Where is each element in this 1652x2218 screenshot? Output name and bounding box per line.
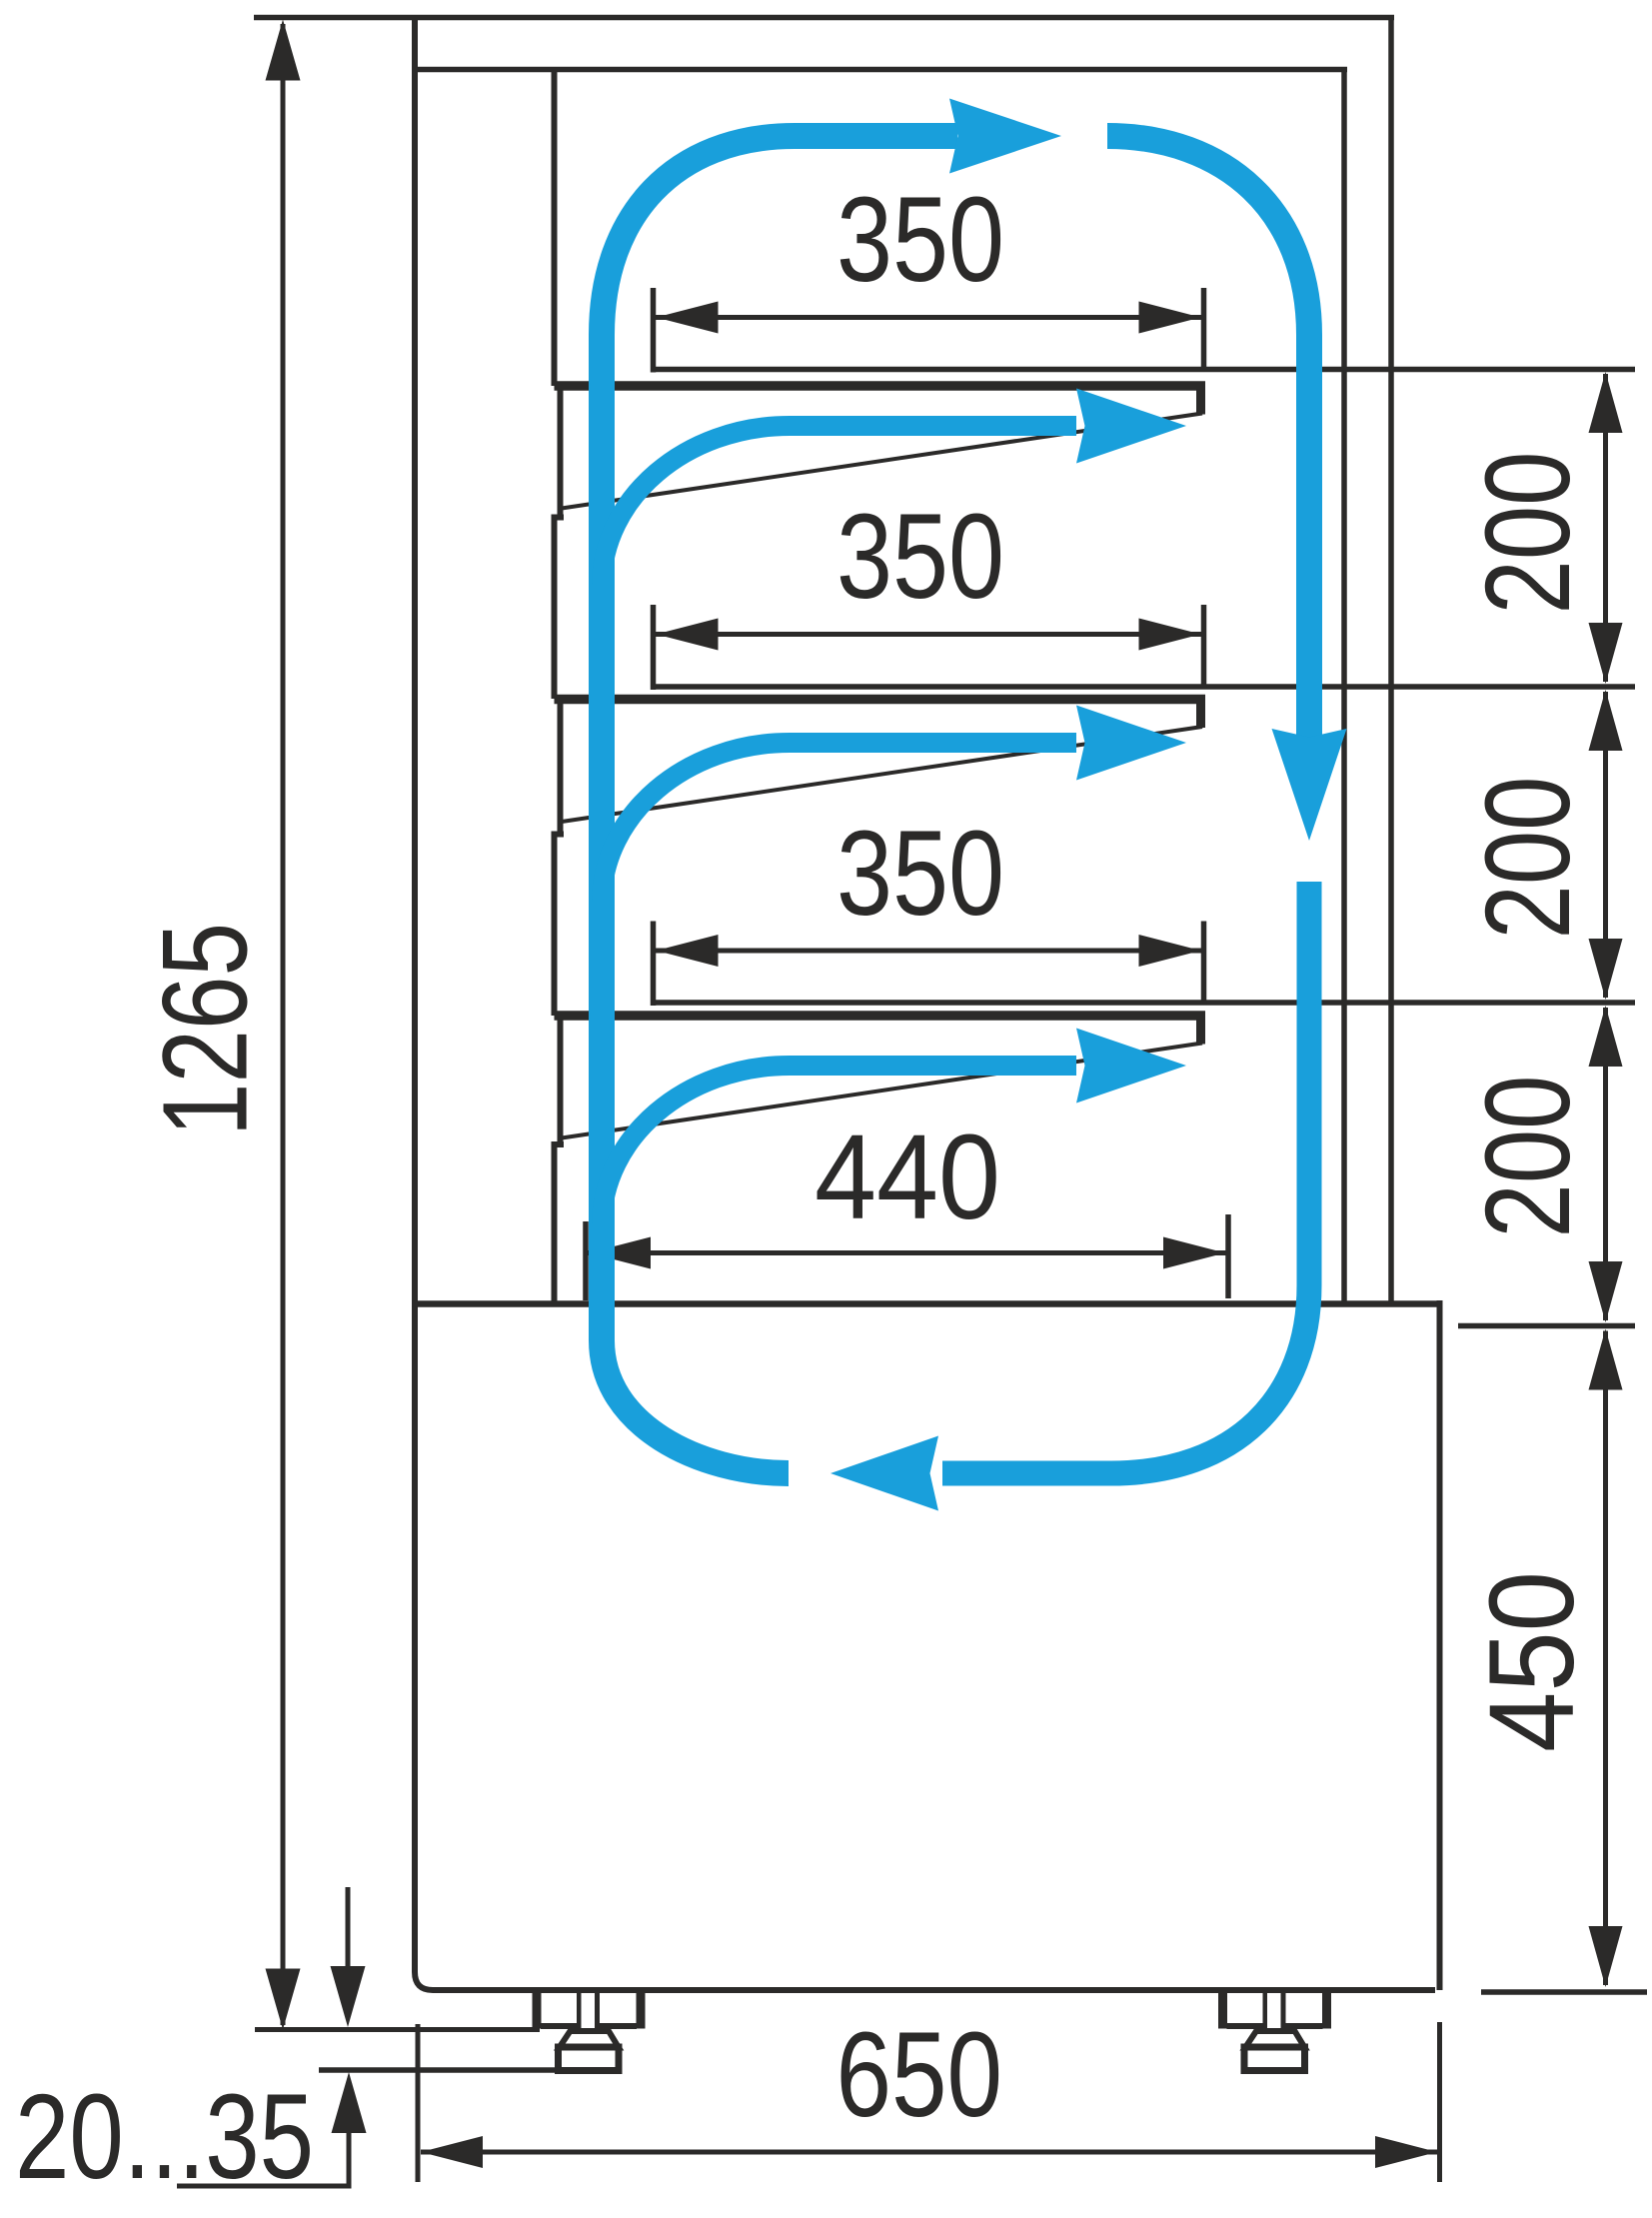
svg-text:350: 350 xyxy=(836,171,1004,307)
svg-text:350: 350 xyxy=(836,488,1004,624)
svg-text:350: 350 xyxy=(836,805,1004,941)
svg-text:200: 200 xyxy=(1459,1076,1595,1238)
svg-text:1265: 1265 xyxy=(137,923,273,1136)
svg-text:200: 200 xyxy=(1459,777,1595,940)
svg-text:450: 450 xyxy=(1463,1571,1599,1752)
svg-text:650: 650 xyxy=(836,2006,1003,2142)
svg-text:20...35: 20...35 xyxy=(15,2068,314,2204)
svg-text:440: 440 xyxy=(815,1109,1000,1244)
svg-text:200: 200 xyxy=(1459,452,1595,615)
